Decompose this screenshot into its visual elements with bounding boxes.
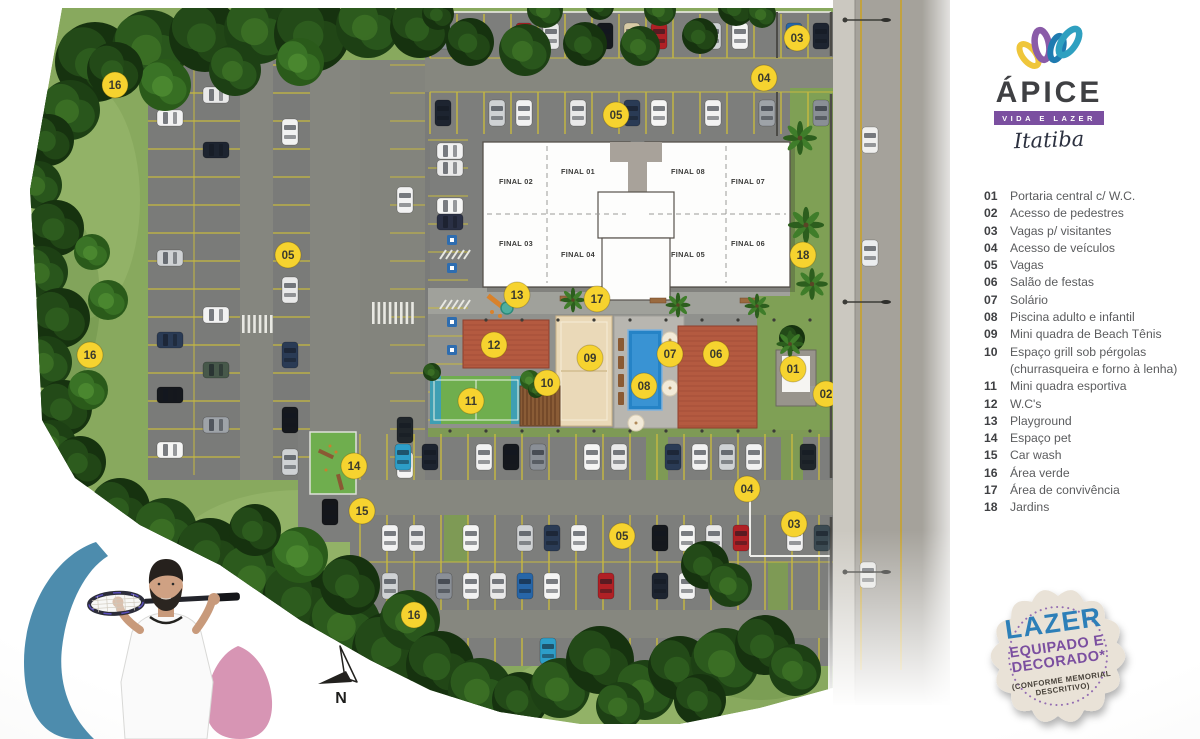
map-marker: 04 <box>734 476 760 502</box>
site-area: FINAL 02FINAL 01FINAL 08FINAL 07FINAL 03… <box>14 0 839 730</box>
svg-text:04: 04 <box>741 484 754 496</box>
svg-text:16: 16 <box>109 80 122 92</box>
map-marker: 05 <box>603 102 629 128</box>
svg-text:02: 02 <box>820 389 833 401</box>
map-marker: 10 <box>534 370 560 396</box>
unit-label: FINAL 04 <box>561 250 596 259</box>
unit-label: FINAL 03 <box>499 239 533 248</box>
unit-label: FINAL 05 <box>671 250 705 259</box>
legend-item-label: Mini quadra esportiva <box>1010 378 1127 395</box>
map-marker: 18 <box>790 242 816 268</box>
legend-item: 09Mini quadra de Beach Tênis <box>984 326 1196 343</box>
map-marker: 12 <box>481 332 507 358</box>
legend-item-label: Piscina adulto e infantil <box>1010 309 1135 326</box>
legend-item-number: 13 <box>984 413 1001 430</box>
legend-item-label: Vagas <box>1010 257 1044 274</box>
logo-city: Itatiba <box>958 125 1141 155</box>
legend-list: 01Portaria central c/ W.C.02Acesso de pe… <box>984 188 1196 517</box>
svg-text:15: 15 <box>356 506 369 518</box>
legend-item: 12W.C's <box>984 396 1196 413</box>
unit-label: FINAL 06 <box>731 239 765 248</box>
legend-item: 10Espaço grill sob pérgolas(churrasqueir… <box>984 344 1196 379</box>
svg-text:08: 08 <box>638 381 651 393</box>
legend-item-number: 05 <box>984 257 1001 274</box>
legend-item-label: Mini quadra de Beach Tênis <box>1010 326 1162 343</box>
site-plan-map: FINAL 02FINAL 01FINAL 08FINAL 07FINAL 03… <box>0 0 963 739</box>
legend-item-label: Acesso de veículos <box>1010 240 1115 257</box>
legend-item-label: Car wash <box>1010 447 1061 464</box>
svg-text:04: 04 <box>758 73 771 85</box>
map-marker: 06 <box>703 341 729 367</box>
legend-item: 11Mini quadra esportiva <box>984 378 1196 395</box>
legend-item-number: 12 <box>984 396 1001 413</box>
pink-petal-shape <box>206 646 272 739</box>
svg-text:14: 14 <box>348 461 361 473</box>
legend-item: 03Vagas p/ visitantes <box>984 223 1196 240</box>
legend-item: 16Área verde <box>984 465 1196 482</box>
map-marker: 17 <box>584 286 610 312</box>
legend-item-label: Área verde <box>1010 465 1070 482</box>
legend-item-number: 11 <box>984 378 1001 395</box>
logo-tagline: VIDA E LAZER <box>994 111 1104 125</box>
svg-text:05: 05 <box>616 531 629 543</box>
logo: ÁPICE VIDA E LAZER Itatiba <box>958 20 1140 152</box>
legend-item: 18Jardins <box>984 499 1196 516</box>
legend-item: 02Acesso de pedestres <box>984 205 1196 222</box>
lazer-badge: LAZEREQUIPADO EDECORADO*(CONFORME MEMORI… <box>958 556 1158 739</box>
map-marker: 13 <box>504 282 530 308</box>
svg-text:01: 01 <box>787 364 800 376</box>
svg-text:03: 03 <box>791 33 804 45</box>
map-marker: 14 <box>341 453 367 479</box>
map-marker: 11 <box>458 388 484 414</box>
legend-item-number: 15 <box>984 447 1001 464</box>
map-marker: 15 <box>349 498 375 524</box>
map-marker: 16 <box>77 342 103 368</box>
legend-item-number: 02 <box>984 205 1001 222</box>
legend-item: 14Espaço pet <box>984 430 1196 447</box>
legend-item: 04Acesso de veículos <box>984 240 1196 257</box>
legend-item: 08Piscina adulto e infantil <box>984 309 1196 326</box>
legend-item-label: Salão de festas <box>1010 274 1094 291</box>
unit-label: FINAL 08 <box>671 167 705 176</box>
legend-item-label: Espaço grill sob pérgolas(churrasqueira … <box>1010 344 1177 379</box>
svg-text:11: 11 <box>465 396 478 408</box>
legend-item-label: Portaria central c/ W.C. <box>1010 188 1135 205</box>
svg-text:16: 16 <box>84 350 97 362</box>
legend-item-number: 03 <box>984 223 1001 240</box>
legend-item-number: 08 <box>984 309 1001 326</box>
map-marker: 09 <box>577 345 603 371</box>
svg-text:06: 06 <box>710 349 723 361</box>
info-panel: ÁPICE VIDA E LAZER Itatiba 01Portaria ce… <box>958 0 1200 739</box>
map-marker: 03 <box>784 25 810 51</box>
legend-item-label: Playground <box>1010 413 1072 430</box>
svg-text:05: 05 <box>282 250 295 262</box>
compass-label: N <box>335 690 347 707</box>
map-marker: 07 <box>657 341 683 367</box>
svg-text:09: 09 <box>584 353 597 365</box>
legend-item-number: 04 <box>984 240 1001 257</box>
legend-item: 05Vagas <box>984 257 1196 274</box>
site-plan-screenshot: FINAL 02FINAL 01FINAL 08FINAL 07FINAL 03… <box>0 0 1200 739</box>
legend-item-label: Área de convivência <box>1010 482 1120 499</box>
legend-item: 01Portaria central c/ W.C. <box>984 188 1196 205</box>
map-marker: 05 <box>275 242 301 268</box>
legend-item-label: Acesso de pedestres <box>1010 205 1124 222</box>
map-marker: 04 <box>751 65 777 91</box>
legend-item-number: 18 <box>984 499 1001 516</box>
map-marker: 16 <box>102 72 128 98</box>
legend-item: 07Solário <box>984 292 1196 309</box>
svg-text:10: 10 <box>541 378 554 390</box>
blue-petal-shape <box>24 542 108 739</box>
legend-item: 13Playground <box>984 413 1196 430</box>
compass: N <box>318 646 357 707</box>
legend-item: 06Salão de festas <box>984 274 1196 291</box>
legend-item-number: 01 <box>984 188 1001 205</box>
legend-item-number: 06 <box>984 274 1001 291</box>
map-marker: 08 <box>631 373 657 399</box>
unit-label: FINAL 02 <box>499 177 533 186</box>
logo-petals-icon <box>1004 20 1094 72</box>
legend-item: 15Car wash <box>984 447 1196 464</box>
unit-label: FINAL 01 <box>561 167 595 176</box>
legend-item-label: Vagas p/ visitantes <box>1010 223 1111 240</box>
svg-text:16: 16 <box>408 610 421 622</box>
legend-item-number: 17 <box>984 482 1001 499</box>
unit-label: FINAL 07 <box>731 177 765 186</box>
legend-item-label: Espaço pet <box>1010 430 1071 447</box>
map-marker: 01 <box>780 356 806 382</box>
map-marker: 03 <box>781 511 807 537</box>
svg-text:07: 07 <box>664 349 677 361</box>
legend-item-number: 07 <box>984 292 1001 309</box>
map-marker: 05 <box>609 523 635 549</box>
svg-text:18: 18 <box>797 250 810 262</box>
svg-text:03: 03 <box>788 519 801 531</box>
legend-item-number: 09 <box>984 326 1001 343</box>
legend-item-number: 16 <box>984 465 1001 482</box>
legend-item-number: 14 <box>984 430 1001 447</box>
svg-text:17: 17 <box>591 294 604 306</box>
logo-name: ÁPICE <box>958 78 1140 108</box>
svg-text:13: 13 <box>511 290 524 302</box>
legend-item-label: W.C's <box>1010 396 1041 413</box>
legend-item-label: Jardins <box>1010 499 1049 516</box>
map-marker: 16 <box>401 602 427 628</box>
legend-item: 17Área de convivência <box>984 482 1196 499</box>
legend-item-label: Solário <box>1010 292 1048 309</box>
svg-text:05: 05 <box>610 110 623 122</box>
legend-item-number: 10 <box>984 344 1001 379</box>
svg-text:12: 12 <box>488 340 501 352</box>
